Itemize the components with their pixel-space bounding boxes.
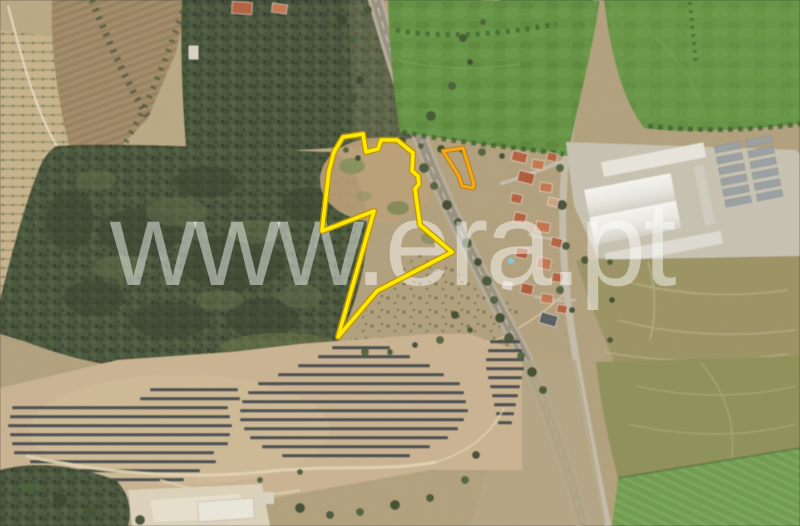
- parcel-overlay: [0, 0, 800, 526]
- satellite-map: www.era.pt: [0, 0, 800, 526]
- parcel-boundary-main: [322, 134, 452, 337]
